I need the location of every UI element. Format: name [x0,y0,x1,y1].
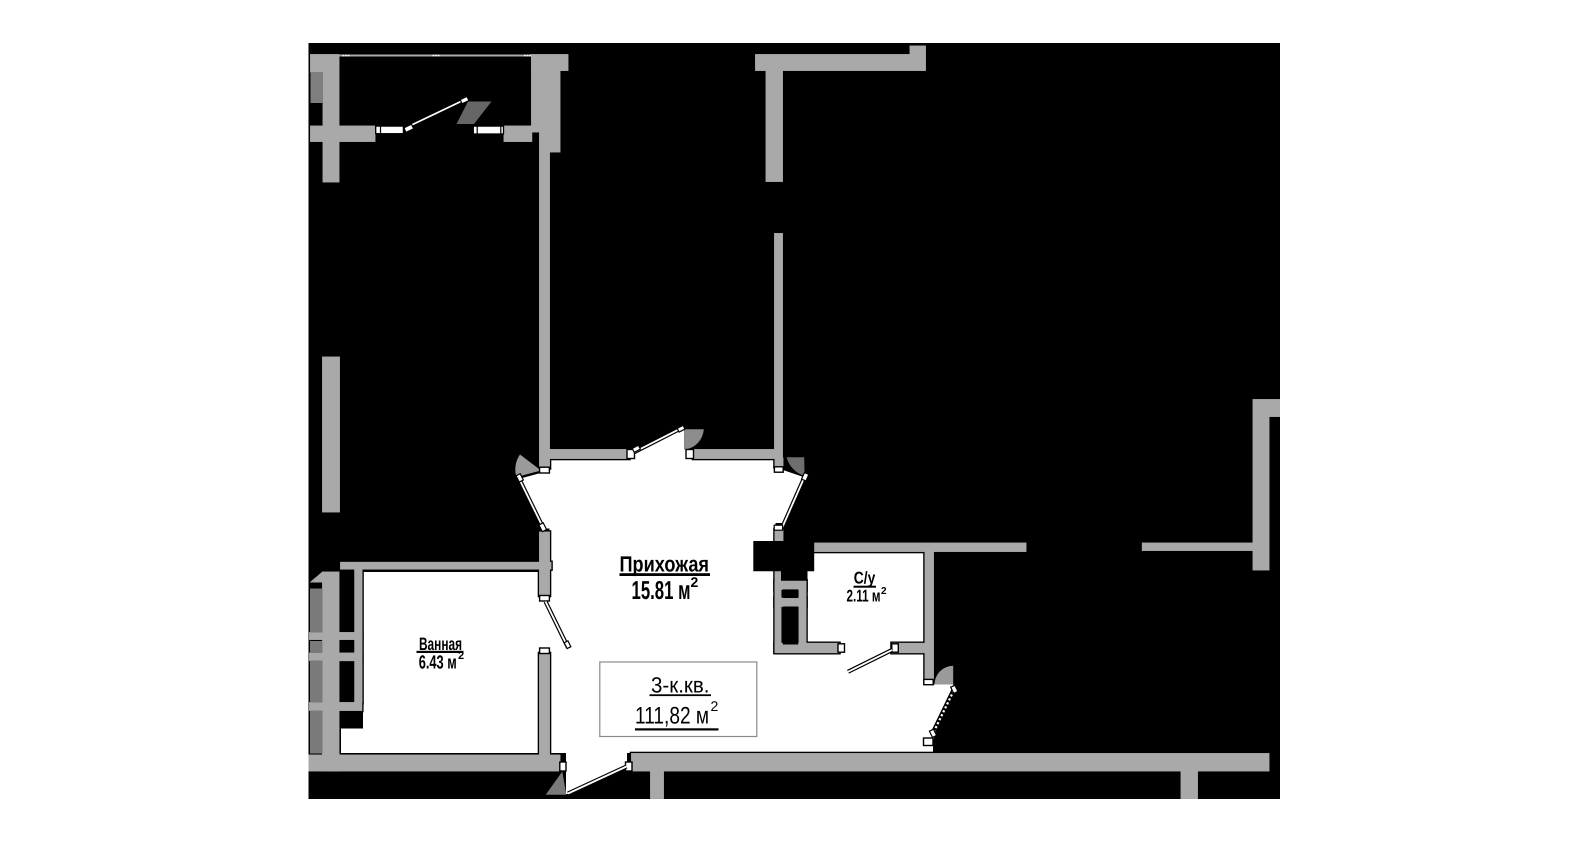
svg-text:Прихожая: Прихожая [620,552,710,577]
svg-text:111,82 м: 111,82 м [635,703,709,730]
svg-text:15.81 м: 15.81 м [632,575,691,605]
svg-text:2: 2 [881,586,887,597]
svg-text:2: 2 [691,574,699,590]
svg-text:2: 2 [458,650,464,662]
svg-text:6.43 м: 6.43 м [419,653,457,674]
svg-text:2.11 м: 2.11 м [847,587,881,606]
svg-text:3-к.кв.: 3-к.кв. [651,672,710,697]
svg-text:2: 2 [711,698,719,714]
svg-text:С/у: С/у [854,569,876,588]
